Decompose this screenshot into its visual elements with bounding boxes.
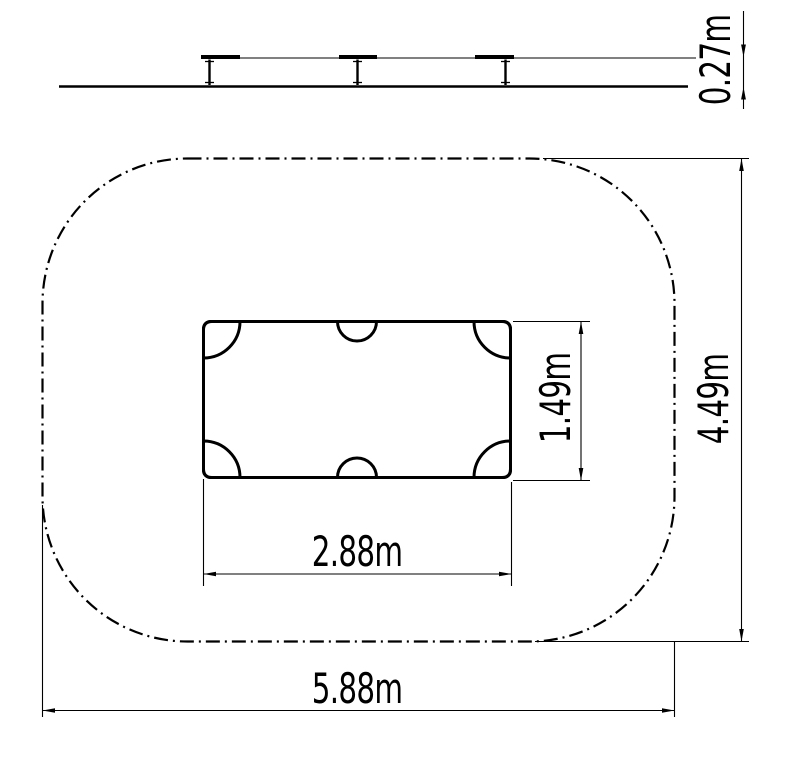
arrowhead	[739, 159, 744, 172]
arrowhead	[741, 87, 746, 100]
platform-leg-right	[501, 60, 510, 86]
arrowhead	[579, 468, 584, 481]
arrowhead	[204, 572, 217, 577]
plan-view	[43, 159, 750, 718]
sandbox-outline	[204, 322, 511, 478]
platform-leg-left	[205, 60, 214, 86]
dimension-platform-height	[741, 11, 746, 109]
arrowhead	[662, 708, 675, 713]
side-elevation-view	[59, 11, 746, 109]
drawing-linework	[0, 0, 785, 768]
dim-label-zone-width: 5.88m	[312, 668, 403, 710]
dim-label-sandbox-depth: 1.49m	[535, 353, 577, 444]
arrowhead	[739, 629, 744, 642]
arrowhead	[741, 45, 746, 58]
arrowhead	[43, 708, 56, 713]
platform-leg-middle	[353, 60, 362, 86]
dim-label-zone-depth: 4.49m	[693, 354, 735, 445]
dim-label-platform-height: 0.27m	[695, 15, 737, 106]
arrowhead	[499, 572, 512, 577]
dim-label-sandbox-width: 2.88m	[312, 531, 403, 573]
arrowhead	[579, 322, 584, 335]
technical-drawing-page: 0.27m 1.49m 4.49m 2.88m 5.88m	[0, 0, 785, 768]
